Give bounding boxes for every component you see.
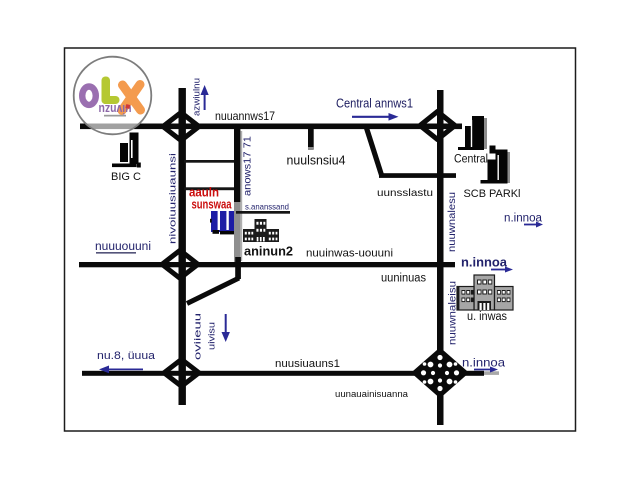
- svg-text:nuusiuauns1: nuusiuauns1: [275, 358, 340, 370]
- svg-text:aninun2: aninun2: [244, 245, 293, 259]
- svg-text:nuuannws17: nuuannws17: [215, 109, 275, 123]
- svg-text:nuuwnalesu: nuuwnalesu: [447, 192, 458, 252]
- svg-text:SCB PARKl: SCB PARKl: [464, 188, 521, 200]
- svg-text:uunauainisuanna: uunauainisuanna: [335, 389, 408, 399]
- svg-text:oviieuu: oviieuu: [193, 313, 204, 360]
- svg-text:n.innoa: n.innoa: [461, 256, 508, 270]
- svg-text:n.innoa: n.innoa: [462, 356, 505, 370]
- svg-text:nivoiuusiuaunsi: nivoiuusiuaunsi: [168, 153, 179, 244]
- svg-text:azwiulnu: azwiulnu: [192, 78, 203, 116]
- svg-text:BIG C: BIG C: [111, 171, 141, 183]
- svg-text:nuuwnaleisu: nuuwnaleisu: [448, 281, 459, 345]
- svg-text:u. inwas: u. inwas: [467, 311, 507, 323]
- svg-text:Central annws1: Central annws1: [336, 97, 413, 111]
- svg-text:uuninuas: uuninuas: [381, 273, 426, 285]
- svg-text:anows17 71: anows17 71: [243, 136, 254, 196]
- svg-text:Central: Central: [454, 154, 488, 166]
- svg-text:nuuinwas-uouuni: nuuinwas-uouuni: [306, 248, 393, 260]
- svg-text:s.ananssand: s.ananssand: [245, 202, 289, 212]
- svg-text:nu.8, üuua: nu.8, üuua: [97, 350, 156, 362]
- svg-text:sunswaa: sunswaa: [192, 198, 233, 212]
- svg-text:nuulsnsiu4: nuulsnsiu4: [287, 154, 346, 168]
- svg-text:uivisu: uivisu: [207, 322, 218, 350]
- svg-text:nuuuouuni: nuuuouuni: [95, 241, 151, 253]
- svg-text:uunsslastu: uunsslastu: [377, 187, 433, 199]
